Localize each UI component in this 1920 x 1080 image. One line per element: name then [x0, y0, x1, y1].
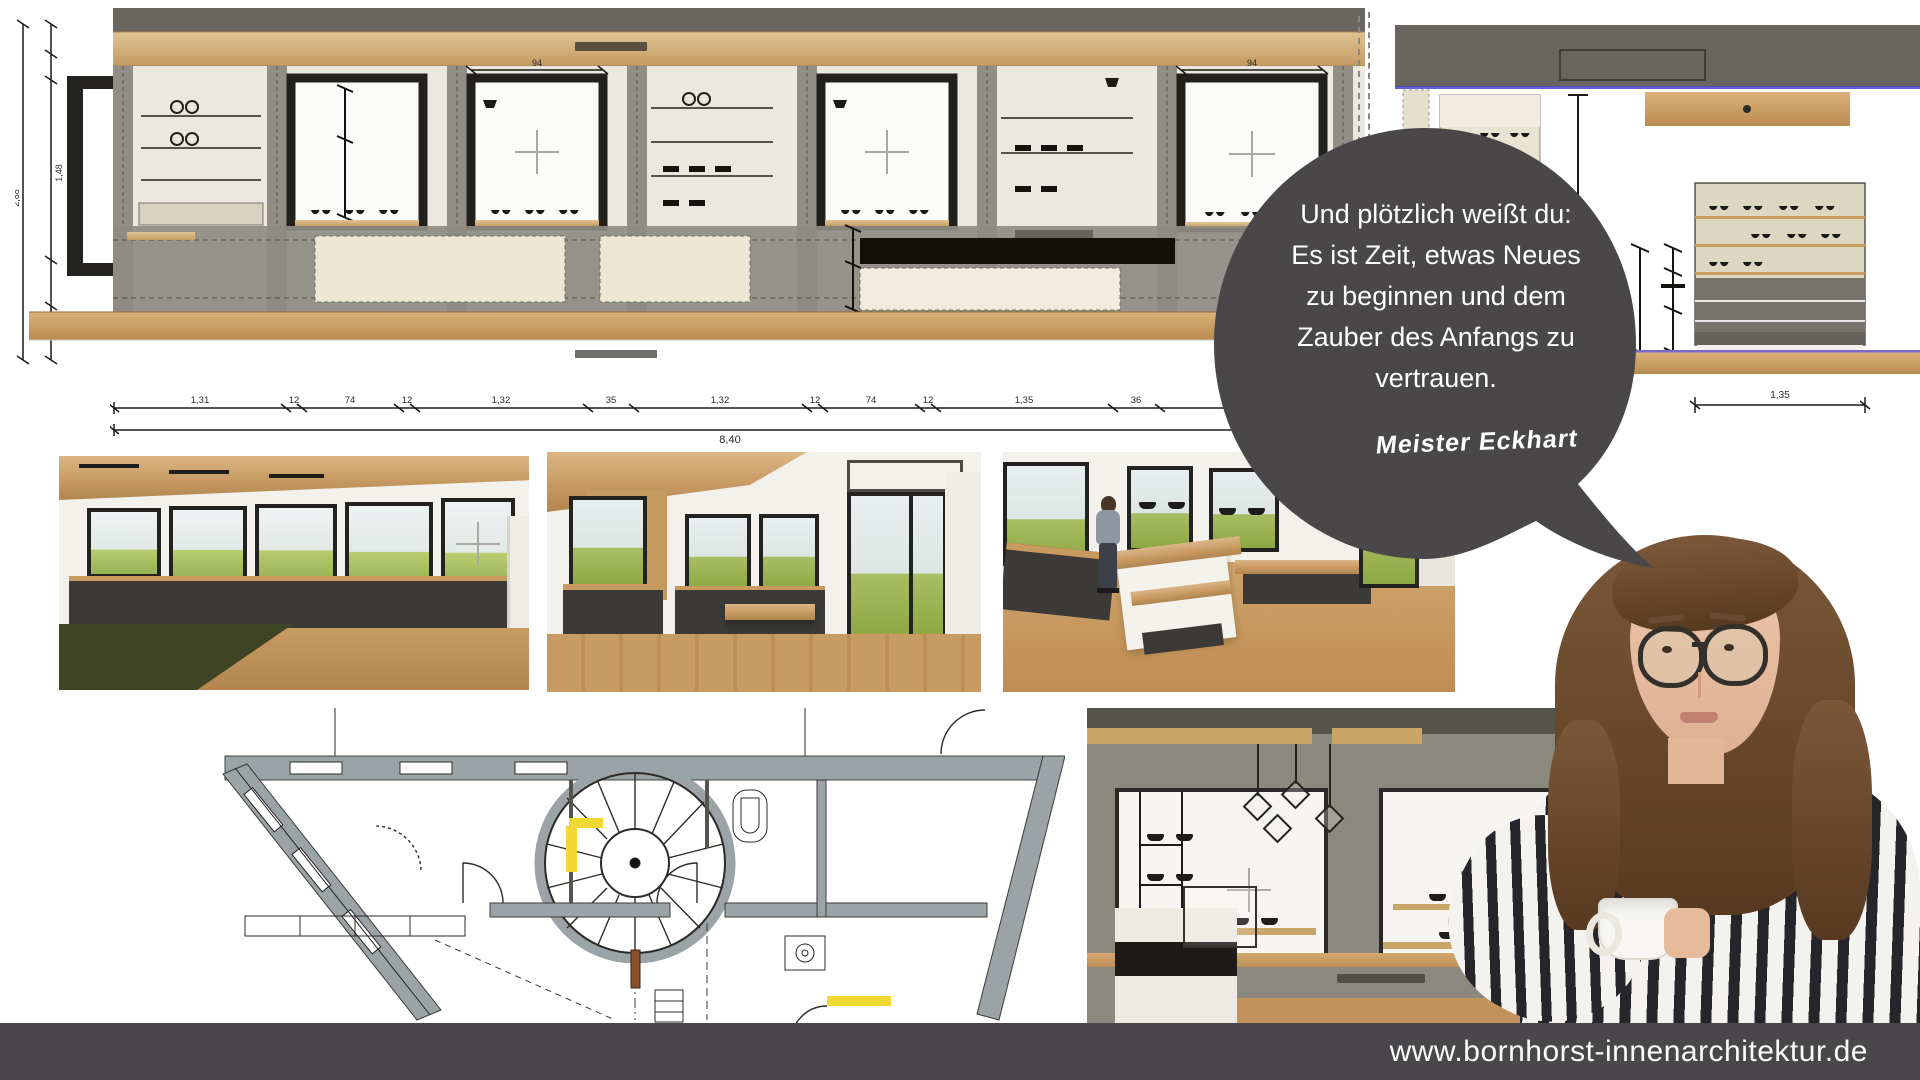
dim-left-window: 1,48 — [54, 164, 64, 182]
dim-left-total: 2,88 — [15, 189, 21, 207]
dim-total: 8,40 — [719, 434, 740, 444]
right-wall — [945, 472, 981, 634]
ceiling-light — [169, 470, 229, 474]
dim-window-width-2: 94 — [1247, 58, 1257, 68]
wood-floor — [547, 634, 981, 692]
eyewear-cabinet — [1695, 183, 1865, 351]
blue-reference-line — [1395, 86, 1920, 89]
dimension-chain: 1,31 12 74 12 1,32 35 1,32 12 74 12 1,35… — [110, 392, 1360, 444]
dim-chain-6: 1,32 — [711, 395, 730, 406]
dim-chain-8: 74 — [866, 395, 877, 406]
window-bay-3 — [466, 66, 608, 226]
dim-window-width-1: 94 — [532, 58, 542, 68]
render-room-view — [547, 452, 981, 692]
wood-beam — [113, 32, 1365, 66]
plan-counter-row — [245, 916, 465, 936]
footer-bar: www.bornhorst-innenarchitektur.de — [0, 1023, 1920, 1080]
ceiling-band — [113, 8, 1365, 32]
ceiling-light — [79, 464, 139, 468]
window — [1127, 466, 1193, 552]
dim-chain-9: 12 — [923, 395, 934, 406]
dim-chain-5: 35 — [606, 395, 617, 406]
floor-plan — [185, 698, 1065, 1024]
purple-reference-line — [1625, 350, 1920, 353]
pendant-lamps — [1237, 744, 1357, 854]
dim-chain-7: 12 — [810, 395, 821, 406]
wood-header-beam — [1087, 728, 1312, 744]
window — [685, 514, 751, 592]
poster-canvas: 2,88 1,48 — [0, 0, 1920, 1080]
beam-label-smudge — [575, 42, 647, 51]
dim-chain-10: 1,35 — [1015, 395, 1034, 406]
window-bay-2 — [291, 78, 423, 226]
person-figure — [1093, 496, 1123, 616]
ceiling-light — [269, 474, 324, 478]
wood-header-beam — [1332, 728, 1422, 744]
quote-line: vertrauen. — [1242, 358, 1630, 399]
floor-label-smudge — [575, 350, 657, 358]
window — [87, 508, 161, 578]
plan-angled-wall — [223, 764, 441, 1020]
bench-base — [1243, 570, 1371, 604]
glass-display-case — [1183, 886, 1257, 948]
wood-ceiling — [59, 456, 529, 500]
floor-band — [29, 312, 1365, 340]
wood-bench — [725, 604, 815, 620]
quote-line: Es ist Zeit, etwas Neues — [1242, 235, 1630, 276]
render-label-smudge — [1337, 974, 1425, 983]
eyewear-row — [1133, 502, 1191, 509]
website-url: www.bornhorst-innenarchitektur.de — [1390, 1035, 1920, 1069]
dim-right-width: 1,35 — [1770, 390, 1790, 401]
window — [569, 496, 647, 590]
window — [345, 502, 433, 586]
right-wall — [507, 516, 529, 628]
render-elevation-view — [1087, 708, 1607, 1024]
plan-post — [631, 950, 640, 988]
glass-door — [847, 492, 913, 640]
quote-text: Und plötzlich weißt du: Es ist Zeit, etw… — [1242, 194, 1630, 399]
main-elevation-svg: 2,88 1,48 — [15, 8, 1365, 392]
plan-wc-fixtures — [733, 790, 825, 970]
window — [255, 504, 337, 582]
floor-plank-right — [1625, 352, 1920, 374]
window — [169, 506, 247, 580]
quote-line: Und plötzlich weißt du: — [1242, 194, 1630, 235]
window-bay-5 — [821, 78, 953, 226]
main-elevation-drawing: 2,88 1,48 — [15, 8, 1365, 392]
glass-door-panel — [909, 492, 947, 640]
dim-chain-3: 12 — [402, 395, 413, 406]
window — [759, 514, 819, 592]
plan-shelf-grid — [655, 990, 683, 1022]
dim-chain-11: 36 — [1131, 395, 1142, 406]
quote-line: Zauber des Anfangs zu — [1242, 317, 1630, 358]
dim-chain-0: 1,31 — [191, 395, 210, 406]
lower-panel-band — [113, 225, 1365, 313]
ceiling-band-right — [1395, 25, 1920, 87]
quote-bubble: Und plötzlich weißt du: Es ist Zeit, etw… — [1212, 128, 1660, 574]
wood-floor-strip — [1237, 998, 1607, 1024]
dim-chain-2: 74 — [345, 395, 356, 406]
right-wall-section — [1555, 734, 1607, 1024]
quote-line: zu beginnen und dem — [1242, 276, 1630, 317]
plan-right-wall — [977, 756, 1065, 1020]
render-corridor-view — [59, 456, 529, 690]
dim-chain-1: 12 — [289, 395, 300, 406]
dim-chain-4: 1,32 — [492, 395, 511, 406]
